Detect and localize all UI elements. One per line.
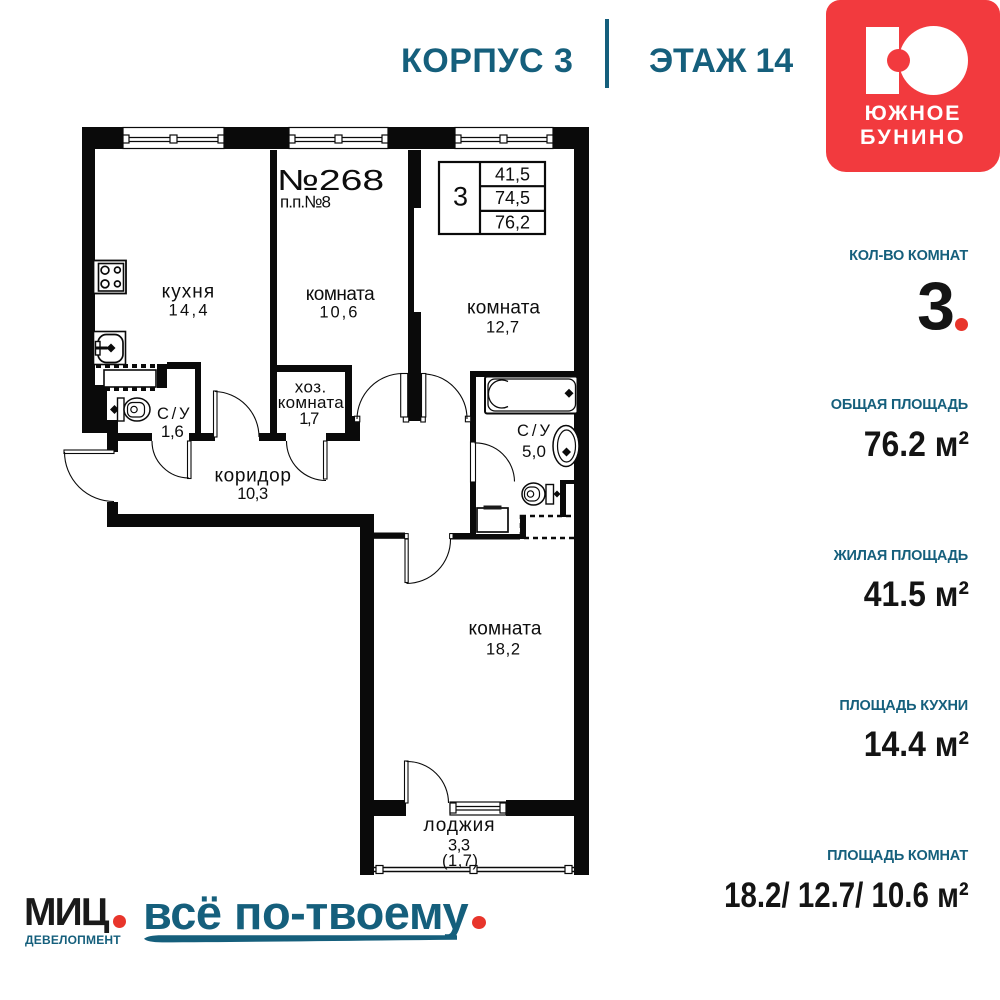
svg-text:С/У: С/У [157, 405, 190, 423]
svg-text:10,6: 10,6 [319, 304, 357, 322]
svg-text:1,6: 1,6 [161, 422, 184, 441]
svg-text:3: 3 [453, 182, 468, 212]
svg-text:комната: комната [469, 619, 542, 640]
svg-text:1,7: 1,7 [299, 410, 319, 428]
svg-text:5,0: 5,0 [522, 442, 546, 461]
svg-text:14,4: 14,4 [169, 302, 208, 320]
svg-text:комната: комната [467, 298, 540, 319]
svg-text:С/У: С/У [517, 422, 551, 440]
svg-text:76,2: 76,2 [495, 213, 530, 233]
svg-text:10,3: 10,3 [237, 485, 268, 503]
svg-text:коридор: коридор [214, 466, 291, 487]
svg-text:п.п.№8: п.п.№8 [280, 193, 331, 212]
svg-text:18,2: 18,2 [486, 641, 520, 659]
svg-text:комната: комната [306, 284, 375, 305]
svg-text:(1,7): (1,7) [442, 852, 478, 870]
svg-text:41,5: 41,5 [495, 165, 530, 185]
svg-text:кухня: кухня [162, 282, 215, 303]
svg-text:74,5: 74,5 [495, 188, 530, 208]
svg-text:лоджия: лоджия [424, 815, 495, 836]
svg-text:12,7: 12,7 [486, 318, 519, 336]
